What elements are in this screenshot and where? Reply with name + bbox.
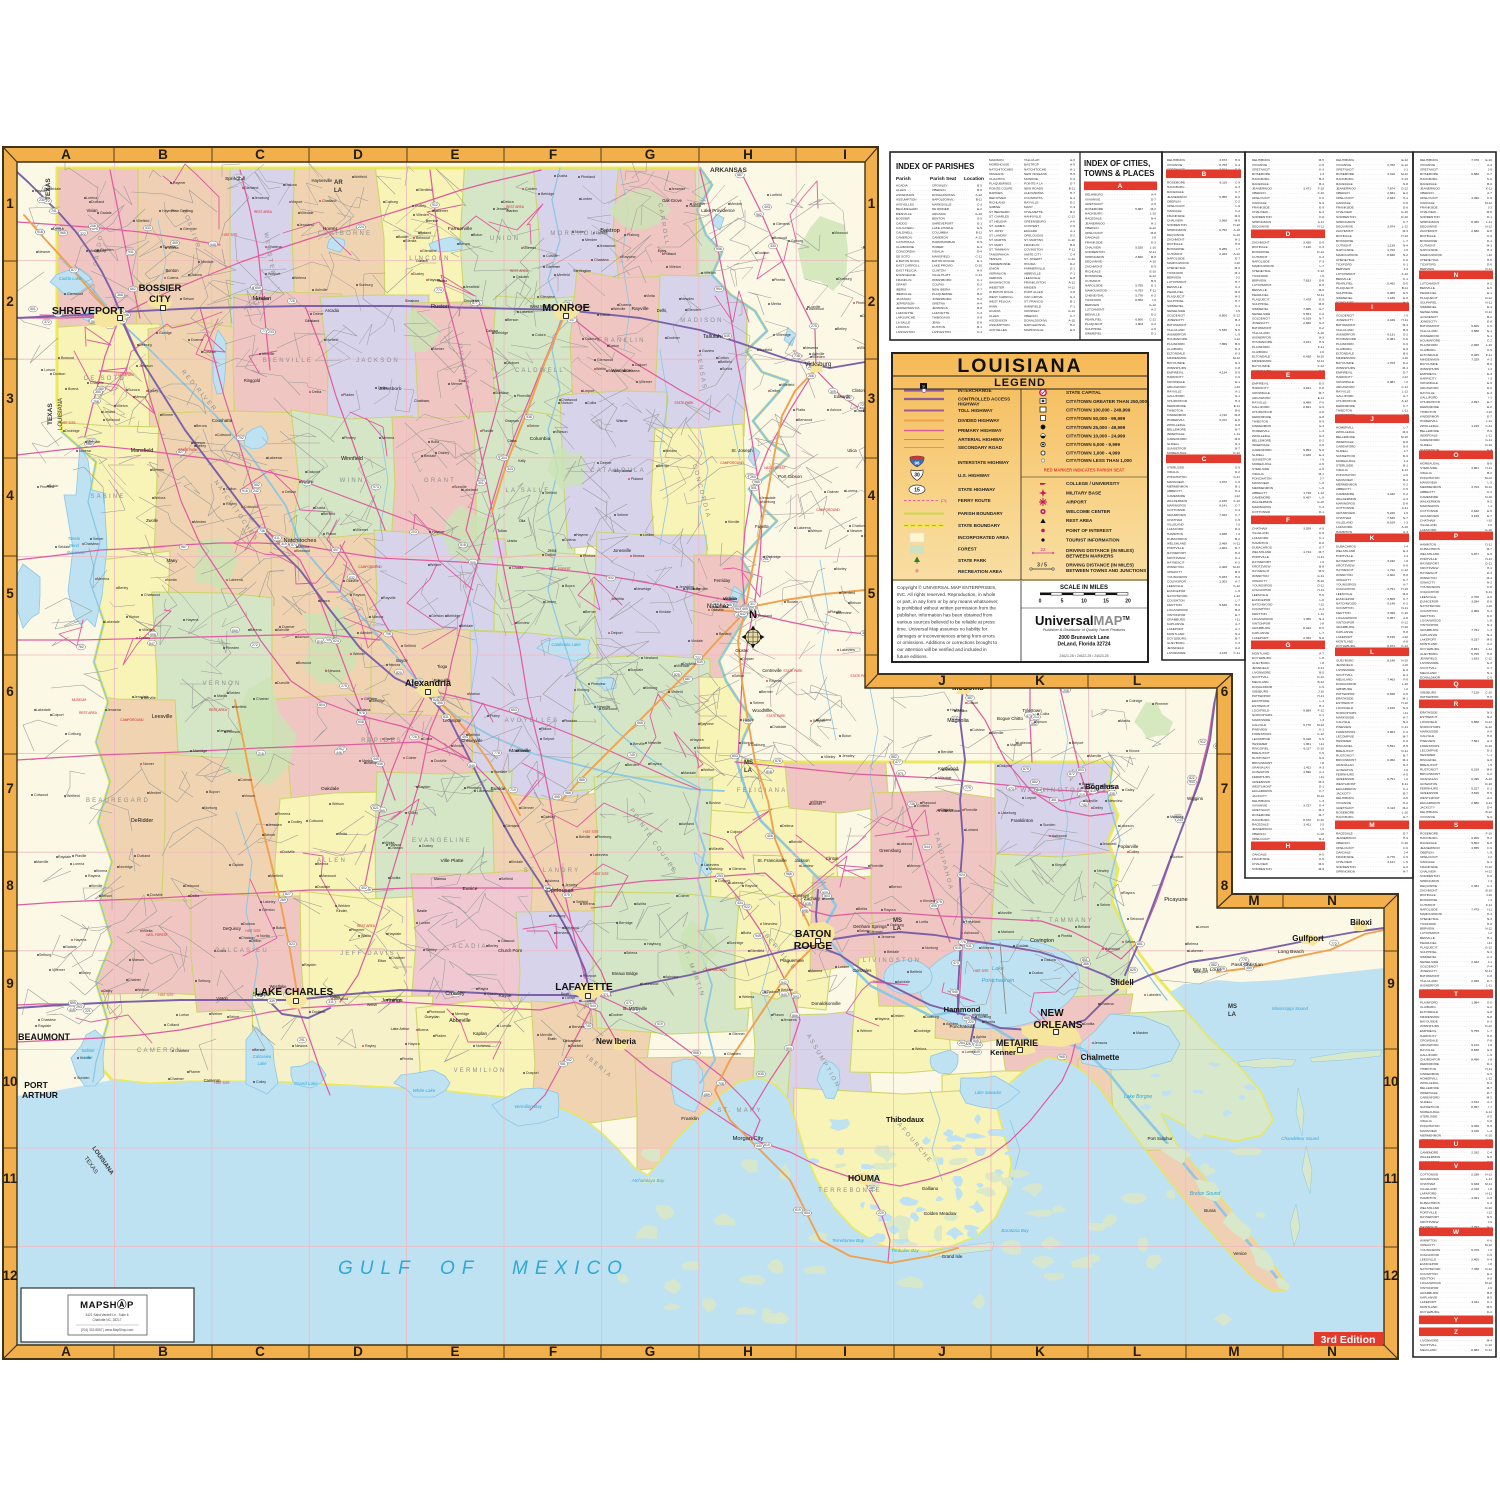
svg-text:RAPIDES: RAPIDES (989, 191, 1003, 195)
svg-text:JEFFERSON: JEFFERSON (896, 302, 914, 306)
svg-text:LIVONMORE: LIVONMORE (1252, 671, 1271, 675)
svg-text:932: 932 (608, 576, 614, 580)
svg-text:TALLULAND: TALLULAND (1420, 979, 1438, 983)
svg-text:Bodale: Bodale (787, 600, 798, 604)
svg-text:A-3: A-3 (1403, 497, 1408, 501)
svg-text:KROTZVIEW: KROTZVIEW (1167, 556, 1185, 560)
svg-text:CHALMETTE: CHALMETTE (1024, 210, 1043, 214)
svg-text:4,449: 4,449 (1387, 318, 1395, 322)
svg-text:519: 519 (657, 1022, 663, 1026)
svg-text:JEFFERSON DA: JEFFERSON DA (896, 306, 920, 310)
svg-text:L-9: L-9 (1488, 1053, 1493, 1057)
svg-text:ARTERIAL HIGHWAY: ARTERIAL HIGHWAY (958, 437, 1004, 442)
svg-text:PINEVIEW: PINEVIEW (1252, 728, 1267, 732)
svg-text:STATE HIGHWAY: STATE HIGHWAY (958, 487, 995, 492)
svg-text:Vinita: Vinita (338, 832, 347, 836)
svg-text:ZWOLLEDAL: ZWOLLEDAL (1167, 423, 1186, 427)
svg-text:CITY: CITY (149, 294, 171, 305)
svg-text:GRETNACIT: GRETNACIT (1420, 168, 1438, 172)
svg-text:D-6: D-6 (1487, 386, 1492, 390)
svg-text:Bastrop: Bastrop (600, 228, 620, 234)
svg-text:Pineita: Pineita (774, 278, 785, 282)
svg-text:OAKDALE: OAKDALE (1336, 851, 1351, 855)
svg-text:540: 540 (781, 993, 787, 997)
svg-text:TOLL HIGHWAY: TOLL HIGHWAY (958, 408, 993, 413)
svg-text:333: 333 (770, 244, 776, 248)
svg-text:9,131: 9,131 (1387, 333, 1395, 337)
svg-text:Pineburg: Pineburg (597, 835, 611, 839)
svg-text:J-4: J-4 (1488, 367, 1493, 371)
svg-text:HOMERVILL: HOMERVILL (1252, 429, 1270, 433)
svg-text:JONESBORO: JONESBORO (932, 297, 952, 301)
svg-text:533: 533 (145, 226, 151, 230)
svg-text:INDEPDALE: INDEPDALE (1420, 434, 1438, 438)
svg-text:DELHIBURG: DELHIBURG (1252, 158, 1271, 162)
svg-text:Norburg: Norburg (925, 946, 938, 950)
svg-text:2,408: 2,408 (1219, 565, 1227, 569)
svg-text:Delley: Delley (1093, 806, 1103, 810)
svg-text:M-6: M-6 (1487, 210, 1493, 214)
svg-text:Arcadia: Arcadia (325, 308, 340, 313)
svg-text:Duxita: Duxita (557, 174, 567, 178)
svg-text:M-8: M-8 (1235, 413, 1241, 417)
svg-text:Boena: Boena (418, 1028, 428, 1032)
svg-text:GULF: GULF (338, 1258, 417, 1279)
svg-text:Sabine: Sabine (81, 1048, 95, 1053)
svg-text:TOWNS & PLACES: TOWNS & PLACES (1084, 169, 1154, 178)
svg-text:M-7: M-7 (1487, 547, 1493, 551)
svg-text:Tullos: Tullos (497, 529, 507, 533)
svg-text:Sunita: Sunita (722, 367, 732, 371)
svg-text:OPELOUCIT: OPELOUCIT (1336, 846, 1354, 850)
svg-text:Tioga: Tioga (437, 664, 448, 669)
svg-text:METAIRIE: METAIRIE (996, 1038, 1038, 1048)
svg-text:M-11: M-11 (1149, 250, 1156, 254)
svg-text:Franklinton: Franklinton (1011, 818, 1034, 823)
svg-text:GONZATON: GONZATON (1252, 770, 1269, 774)
svg-text:Lakeena: Lakeena (797, 526, 811, 530)
svg-text:774: 774 (436, 288, 442, 292)
svg-text:GRANDVIEW: GRANDVIEW (1167, 513, 1186, 517)
svg-text:Rayden: Rayden (304, 963, 316, 967)
svg-text:Selfield: Selfield (468, 733, 480, 737)
svg-text:Cameron: Cameron (204, 1078, 222, 1083)
svg-text:Oakora: Oakora (1044, 958, 1056, 962)
svg-text:Selden: Selden (229, 691, 240, 695)
svg-text:Q: Q (1453, 681, 1458, 688)
svg-text:H-9: H-9 (977, 269, 982, 273)
svg-text:E: E (450, 1344, 459, 1359)
svg-text:C: C (255, 147, 265, 162)
svg-text:OPELOUCIT: OPELOUCIT (1420, 855, 1438, 859)
svg-text:E-12: E-12 (1401, 158, 1408, 162)
svg-text:Sunview: Sunview (495, 391, 509, 395)
svg-text:Oakport: Oakport (999, 764, 1012, 768)
svg-text:Newora: Newora (295, 1044, 307, 1048)
svg-text:DUBACHROS: DUBACHROS (1336, 545, 1356, 549)
svg-text:Glenora: Glenora (364, 697, 377, 701)
svg-text:Glenfield: Glenfield (841, 591, 855, 595)
svg-text:Rayne: Rayne (498, 993, 512, 998)
svg-text:Dodridge: Dodridge (65, 429, 80, 433)
svg-text:Villemer: Villemer (639, 380, 653, 384)
svg-text:WINNFTON: WINNFTON (1167, 565, 1184, 569)
svg-text:Welita: Welita (614, 597, 624, 601)
svg-text:Ashson: Ashson (297, 635, 309, 639)
svg-text:Natchitoches: Natchitoches (284, 538, 317, 544)
svg-text:Cotburg: Cotburg (385, 200, 398, 204)
svg-text:SPRINGMON: SPRINGMON (1167, 228, 1186, 232)
svg-text:J-2: J-2 (1488, 855, 1493, 859)
svg-text:I-5: I-5 (1236, 523, 1240, 527)
svg-text:6,117: 6,117 (1303, 747, 1311, 751)
svg-text:5,639: 5,639 (1219, 603, 1227, 607)
svg-text:STERLSIDE: STERLSIDE (1420, 1115, 1437, 1119)
svg-text:Berley: Berley (488, 944, 498, 948)
svg-text:N-3: N-3 (1487, 950, 1492, 954)
svg-text:TENSAS: TENSAS (989, 257, 1001, 261)
svg-text:Franklin: Franklin (681, 1116, 699, 1122)
svg-text:TICKFORD: TICKFORD (1167, 271, 1184, 275)
svg-text:Jenaland: Jenaland (299, 223, 314, 227)
svg-text:N-4: N-4 (1235, 361, 1240, 365)
svg-text:WINNFTON: WINNFTON (1420, 1239, 1437, 1243)
svg-text:RACEDALE: RACEDALE (1420, 182, 1437, 186)
svg-text:KENTTON: KENTTON (1420, 614, 1435, 618)
svg-text:Abbeville: Abbeville (449, 1018, 471, 1024)
svg-text:3: 3 (6, 391, 14, 406)
svg-text:KAPLANVIE: KAPLANVIE (1336, 630, 1353, 634)
svg-text:LOGANWOOD: LOGANWOOD (1252, 617, 1274, 621)
svg-text:BERVIEW: BERVIEW (1420, 927, 1434, 931)
svg-text:RECREATION AREA: RECREATION AREA (958, 569, 1003, 574)
svg-text:Sunville: Sunville (1085, 799, 1098, 803)
svg-text:POINTE COUPE: POINTE COUPE (989, 186, 1012, 190)
svg-text:B-5: B-5 (1319, 671, 1324, 675)
svg-text:HAHNVILLE: HAHNVILLE (1024, 215, 1041, 219)
svg-text:D-2: D-2 (1070, 262, 1075, 266)
svg-text:971: 971 (898, 772, 904, 776)
svg-text:C-6: C-6 (1319, 196, 1324, 200)
svg-text:Jena: Jena (548, 548, 558, 553)
svg-text:Selmer: Selmer (264, 833, 276, 837)
svg-text:EMPIREVIL: EMPIREVIL (1420, 1029, 1437, 1033)
svg-text:M-6: M-6 (1235, 266, 1241, 270)
svg-text:8,550: 8,550 (1135, 298, 1143, 302)
svg-text:EUNICEPOR: EUNICEPOR (1252, 598, 1271, 602)
svg-text:K-5: K-5 (1319, 737, 1324, 741)
svg-text:SLIDELL: SLIDELL (1336, 449, 1349, 453)
svg-text:11: 11 (1384, 1171, 1399, 1186)
svg-text:1,411: 1,411 (1303, 766, 1311, 770)
svg-text:L-7: L-7 (1404, 426, 1409, 430)
svg-text:ST. LANDRY: ST. LANDRY (524, 868, 581, 874)
svg-text:ARCAWOOD: ARCAWOOD (1420, 1043, 1439, 1047)
svg-text:2,620: 2,620 (1471, 509, 1479, 513)
svg-text:G-8: G-8 (1487, 758, 1492, 762)
svg-text:D-12: D-12 (1485, 1348, 1492, 1352)
svg-text:544: 544 (590, 1004, 596, 1008)
svg-text:LAKEPORT: LAKEPORT (1167, 627, 1184, 631)
svg-text:A-12: A-12 (1401, 399, 1408, 403)
svg-text:Catahoula Lake: Catahoula Lake (551, 642, 581, 647)
svg-text:D-8: D-8 (1403, 440, 1408, 444)
svg-text:ABBECITY: ABBECITY (1420, 490, 1435, 494)
svg-text:Belfield: Belfield (720, 360, 732, 364)
svg-text:403: 403 (764, 205, 770, 209)
svg-text:Boyce: Boyce (396, 658, 408, 663)
svg-text:WINNFTON: WINNFTON (1420, 576, 1437, 580)
svg-text:Norburg: Norburg (762, 500, 775, 504)
svg-text:396: 396 (437, 701, 443, 705)
svg-text:CHENEYDAL: CHENEYDAL (1336, 258, 1355, 262)
svg-text:H-5: H-5 (1403, 744, 1408, 748)
svg-text:8,286: 8,286 (1219, 247, 1227, 251)
svg-text:1,210: 1,210 (1471, 424, 1479, 428)
svg-text:MOREAUDAL: MOREAUDAL (1420, 1110, 1440, 1114)
svg-text:Selner: Selner (1100, 903, 1111, 907)
svg-text:D-1: D-1 (1319, 510, 1324, 514)
svg-text:ARCAWOOD: ARCAWOOD (1420, 386, 1439, 390)
svg-text:K: K (1035, 673, 1045, 688)
svg-text:Kinwood: Kinwood (296, 549, 310, 553)
svg-text:SPRINGMON: SPRINGMON (1420, 220, 1439, 224)
svg-text:E-3: E-3 (1487, 1272, 1492, 1276)
svg-text:OBERLIN: OBERLIN (1336, 191, 1350, 195)
svg-text:RAYVILLE: RAYVILLE (1336, 390, 1351, 394)
svg-text:L-1: L-1 (1488, 753, 1493, 757)
svg-text:K-2: K-2 (1403, 483, 1408, 487)
svg-text:N-12: N-12 (1485, 225, 1492, 229)
svg-text:738: 738 (794, 354, 800, 358)
svg-text:H-2: H-2 (1403, 801, 1408, 805)
svg-text:BIENVILLE: BIENVILLE (263, 358, 313, 364)
svg-text:4,864: 4,864 (1387, 730, 1395, 734)
svg-text:2,934: 2,934 (1387, 196, 1395, 200)
svg-text:Vicksburg: Vicksburg (805, 361, 832, 368)
svg-text:VINTONPOR: VINTONPOR (1167, 613, 1186, 617)
svg-text:Merden: Merden (585, 238, 597, 242)
svg-text:Lakeora: Lakeora (899, 842, 912, 846)
svg-text:D-11: D-11 (1318, 584, 1325, 588)
svg-text:G-3: G-3 (1319, 434, 1324, 438)
svg-text:D-11: D-11 (1486, 562, 1493, 566)
svg-text:REST AREA: REST AREA (209, 708, 228, 712)
svg-text:FY.: FY. (941, 499, 948, 504)
svg-text:Morgan City: Morgan City (733, 1136, 764, 1142)
svg-text:1,603: 1,603 (1135, 322, 1143, 326)
svg-text:275: 275 (811, 324, 817, 328)
svg-text:Many: Many (166, 558, 178, 563)
svg-text:VERMILION: VERMILION (454, 1068, 507, 1074)
svg-text:Welmer: Welmer (353, 652, 366, 656)
svg-text:B-9: B-9 (1487, 362, 1492, 366)
svg-text:Lake: Lake (83, 1055, 93, 1060)
svg-text:J-5: J-5 (1404, 248, 1409, 252)
svg-text:Lakeena: Lakeena (229, 578, 243, 582)
svg-text:BOSSROSE: BOSSROSE (1252, 250, 1269, 254)
svg-text:I-9: I-9 (1152, 298, 1156, 302)
svg-text:Parish: Parish (896, 176, 911, 182)
svg-text:D-1: D-1 (1151, 332, 1156, 336)
svg-text:C-1: C-1 (1319, 713, 1324, 717)
svg-text:St. Martinville: St. Martinville (623, 1006, 648, 1011)
svg-text:709: 709 (325, 638, 331, 642)
svg-text:Chatham,: Chatham, (414, 399, 430, 403)
svg-text:E-12: E-12 (1149, 226, 1156, 230)
svg-text:IOWACITY: IOWACITY (1167, 570, 1182, 574)
svg-text:G-5: G-5 (977, 217, 982, 221)
svg-text:LECOMPVIE: LECOMPVIE (1420, 749, 1438, 753)
svg-text:I-10: I-10 (1487, 519, 1493, 523)
svg-text:Duxita: Duxita (315, 506, 325, 510)
svg-text:5,551: 5,551 (1303, 312, 1311, 316)
svg-text:Villeden: Villeden (416, 213, 429, 217)
svg-text:Belley: Belley (837, 327, 847, 331)
svg-text:E-2: E-2 (977, 207, 982, 211)
svg-text:D-2: D-2 (1235, 470, 1240, 474)
svg-text:Gaburg: Gaburg (791, 239, 803, 243)
svg-text:Fayette: Fayette (755, 524, 769, 529)
svg-text:A-5: A-5 (1403, 773, 1408, 777)
svg-text:MARKSSIDE: MARKSSIDE (1420, 730, 1438, 734)
svg-text:H-12: H-12 (1401, 701, 1408, 705)
svg-text:MEXICO: MEXICO (512, 1258, 629, 1279)
svg-text:Newview: Newview (763, 922, 778, 926)
svg-text:L-4: L-4 (1320, 699, 1325, 703)
svg-text:I-8: I-8 (1488, 1262, 1492, 1266)
svg-text:H-4: H-4 (977, 302, 982, 306)
svg-text:URANIALAN: URANIALAN (1252, 766, 1270, 770)
svg-text:Welita: Welita (361, 934, 371, 938)
svg-text:ABBEVILLE: ABBEVILLE (1024, 271, 1041, 275)
svg-text:Glenmer: Glenmer (869, 930, 884, 934)
svg-text:8,538: 8,538 (1471, 1048, 1479, 1052)
svg-text:DELHIBURG: DELHIBURG (1336, 158, 1355, 162)
svg-text:792: 792 (238, 436, 244, 440)
svg-text:K-3: K-3 (1487, 1020, 1492, 1024)
svg-text:F-7: F-7 (977, 287, 982, 291)
svg-text:WINN: WINN (989, 304, 997, 308)
svg-text:COTTONSID: COTTONSID (1167, 508, 1186, 512)
svg-text:Marton: Marton (469, 692, 480, 696)
svg-text:WESTLMONT: WESTLMONT (1420, 796, 1440, 800)
svg-text:MARINGROS: MARINGROS (1420, 504, 1439, 508)
svg-text:Glenwood: Glenwood (597, 358, 613, 362)
svg-text:Marita: Marita (1120, 719, 1130, 723)
svg-text:Cotburg: Cotburg (68, 732, 81, 736)
svg-text:SORRENTON: SORRENTON (1167, 223, 1187, 227)
svg-text:ST. BERNARD: ST. BERNARD (989, 210, 1010, 214)
svg-text:E-7: E-7 (1235, 257, 1240, 261)
svg-text:Oakora: Oakora (689, 204, 701, 208)
svg-text:Grand Lake: Grand Lake (294, 1081, 318, 1086)
svg-text:CITY/TOWN 10,000 - 24,999: CITY/TOWN 10,000 - 24,999 (1066, 434, 1126, 439)
svg-text:ZWOLLEDAL: ZWOLLEDAL (1420, 424, 1439, 428)
svg-text:G-8: G-8 (1487, 1010, 1492, 1014)
svg-text:Marson: Marson (132, 958, 144, 962)
svg-text:962: 962 (756, 213, 762, 217)
svg-text:C-3: C-3 (977, 202, 982, 206)
svg-text:Sunden: Sunden (1043, 823, 1055, 827)
svg-text:Pontchartrain: Pontchartrain (982, 978, 1015, 984)
svg-text:554: 554 (804, 1211, 810, 1215)
svg-text:Donaldsonville: Donaldsonville (811, 1001, 841, 1006)
svg-text:U.S. HIGHWAY: U.S. HIGHWAY (958, 473, 990, 478)
svg-text:HOUMA: HOUMA (848, 1173, 880, 1183)
svg-text:Oakridge: Oakridge (766, 555, 781, 559)
svg-text:GIBSBURG: GIBSBURG (1420, 691, 1437, 695)
svg-text:C-1: C-1 (1235, 304, 1240, 308)
svg-text:B: B (1202, 171, 1207, 178)
svg-text:A-4: A-4 (1487, 163, 1492, 167)
svg-text:Zachary: Zachary (804, 896, 821, 901)
svg-text:CAMPGROUND: CAMPGROUND (816, 508, 840, 512)
svg-text:J: J (938, 1344, 946, 1359)
svg-text:Bowood: Bowood (61, 356, 74, 360)
svg-text:E-6: E-6 (1487, 841, 1492, 845)
svg-text:Sunton: Sunton (1172, 855, 1183, 859)
svg-text:N-8: N-8 (1487, 1015, 1492, 1019)
svg-text:G-12: G-12 (1149, 303, 1156, 307)
svg-text:AVOYELLES: AVOYELLES (896, 202, 914, 206)
svg-text:A-2: A-2 (1487, 642, 1492, 646)
svg-text:Delport: Delport (611, 631, 623, 635)
svg-text:LEESVILLE: LEESVILLE (1167, 584, 1183, 588)
svg-text:Y: Y (1454, 1317, 1459, 1324)
svg-text:STERLSIDE: STERLSIDE (1336, 464, 1353, 468)
svg-text:HOMER: HOMER (932, 245, 944, 249)
svg-text:J-10: J-10 (1486, 893, 1492, 897)
svg-text:SULPHFIEL: SULPHFIEL (1420, 301, 1437, 305)
svg-text:A-10: A-10 (1317, 331, 1324, 335)
svg-text:HIST SITE: HIST SITE (593, 872, 608, 876)
svg-text:NAPOLSIDE: NAPOLSIDE (1336, 248, 1354, 252)
svg-text:Gawood: Gawood (501, 939, 514, 943)
svg-text:Kinview: Kinview (923, 899, 936, 903)
svg-text:ELTONDALE: ELTONDALE (1420, 353, 1438, 357)
svg-text:635: 635 (805, 902, 811, 906)
svg-text:TERREBONNE: TERREBONNE (818, 1188, 882, 1194)
svg-text:Urania: Urania (507, 539, 517, 543)
svg-text:L-7: L-7 (1320, 264, 1325, 268)
svg-text:Lorton: Lorton (179, 1013, 189, 1017)
svg-text:N-11: N-11 (1234, 542, 1241, 546)
svg-text:F-12: F-12 (1318, 364, 1325, 368)
svg-text:Leesville: Leesville (152, 714, 173, 720)
svg-text:6,776: 6,776 (1387, 855, 1395, 859)
svg-text:J-7: J-7 (1404, 449, 1409, 453)
svg-text:J-9: J-9 (1488, 1286, 1493, 1290)
svg-text:Eunice: Eunice (463, 886, 478, 892)
svg-text:D: D (1286, 231, 1291, 238)
svg-text:COLFAXPOR: COLFAXPOR (1336, 587, 1356, 591)
svg-text:I-4: I-4 (1488, 504, 1492, 508)
svg-text:B-11: B-11 (1069, 186, 1076, 190)
svg-text:HOUMAFORD: HOUMAFORD (1167, 337, 1188, 341)
svg-text:SORRENTON: SORRENTON (1336, 865, 1356, 869)
svg-text:MS: MS (893, 918, 902, 924)
svg-text:U: U (1454, 1141, 1459, 1148)
svg-text:WASHINGTON: WASHINGTON (989, 281, 1010, 285)
svg-text:A-2: A-2 (1151, 322, 1156, 326)
svg-text:F-1: F-1 (1070, 304, 1075, 308)
svg-text:Delson: Delson (285, 490, 296, 494)
svg-text:Selburg: Selburg (39, 953, 51, 957)
svg-text:1: 1 (868, 196, 876, 211)
svg-text:MOREAUDAL: MOREAUDAL (1252, 462, 1272, 466)
svg-text:VINTONPOR: VINTONPOR (1252, 622, 1271, 626)
